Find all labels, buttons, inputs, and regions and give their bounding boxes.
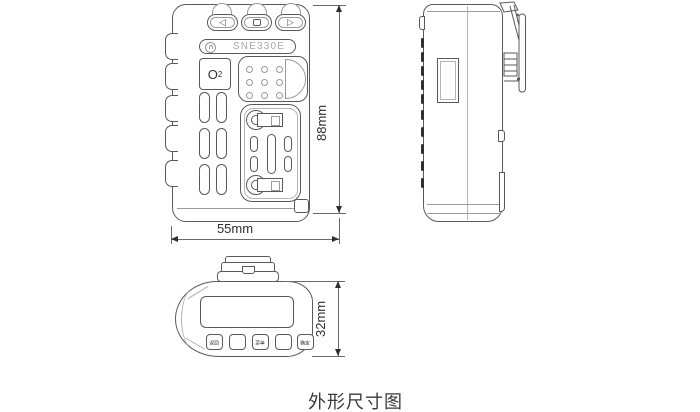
grip-rib: [165, 95, 178, 122]
side-rib: [421, 178, 424, 188]
model-label-bar: SNE330E: [199, 39, 296, 54]
side-center-seam: [467, 6, 468, 220]
extension-line: [313, 213, 346, 214]
dimension-line: [338, 281, 339, 356]
speaker-hole: [261, 92, 268, 99]
speaker-hole: [276, 79, 283, 86]
device-button-left: ◁: [207, 14, 238, 31]
sensor-slot: [284, 156, 292, 172]
side-rib: [421, 110, 424, 120]
o2-label: O2: [200, 59, 230, 89]
key-confirm: 确定: [297, 334, 314, 350]
side-right-notch: [498, 130, 505, 142]
extension-line: [339, 218, 340, 244]
speaker-hole: [246, 66, 253, 73]
side-body-outline: [423, 4, 503, 222]
display-window: [200, 296, 294, 328]
belt-clip: [494, 0, 534, 100]
grip-rib: [165, 63, 178, 90]
side-rib: [421, 80, 424, 90]
o2-sensor-window: O2: [199, 58, 231, 90]
grip-rib: [165, 33, 178, 60]
side-top-seam: [427, 11, 500, 12]
buzzer-pocket: [285, 59, 306, 99]
side-window-inner-line: [440, 61, 456, 100]
arrowhead: [336, 5, 342, 12]
sensor-slot: [250, 156, 258, 172]
dimension-line: [339, 5, 340, 213]
arrowhead: [332, 236, 339, 242]
side-rib: [421, 144, 424, 154]
vent-slot: [199, 128, 210, 159]
key-back: 返回: [206, 334, 223, 350]
drawing-caption: 外形尺寸图: [308, 388, 403, 412]
speaker-hole: [261, 79, 268, 86]
speaker-hole: [246, 92, 253, 99]
arrowhead: [336, 206, 342, 213]
corner-notch: [294, 199, 309, 213]
vent-slot: [216, 92, 227, 123]
right-arrow-icon: ▷: [287, 18, 294, 27]
side-button-profile: [419, 16, 425, 30]
side-rib: [421, 161, 424, 171]
depth-dim-label: 32mm: [313, 295, 328, 343]
side-rib: [421, 66, 424, 76]
vent-slot: [216, 128, 227, 159]
square-icon: [253, 19, 261, 26]
dimension-line: [172, 239, 339, 240]
key-menu: 菜单: [252, 334, 269, 350]
arrowhead: [171, 236, 178, 242]
side-right-step: [499, 172, 505, 212]
side-bottom-seam: [427, 213, 501, 214]
sensor-slot: [250, 136, 258, 152]
model-label: SNE330E: [224, 41, 294, 52]
vent-slot: [216, 164, 227, 195]
key-blank: [229, 334, 246, 350]
side-rib: [421, 52, 424, 62]
grip-rib: [165, 160, 178, 187]
arrowhead: [335, 281, 341, 288]
speaker-hole: [261, 66, 268, 73]
sensor-slot-center: [267, 134, 276, 174]
left-arrow-icon: ◁: [219, 18, 226, 27]
extension-line: [312, 356, 345, 357]
key-blank: [275, 334, 292, 350]
device-button-right: ▷: [275, 14, 306, 31]
speaker-hole: [276, 92, 283, 99]
sensor-panel: [240, 104, 301, 202]
side-rib: [421, 38, 424, 48]
height-dim-label: 88mm: [314, 95, 329, 151]
width-dim-label: 55mm: [205, 221, 265, 236]
vent-slot: [199, 92, 210, 123]
speaker-hole: [276, 66, 283, 73]
side-window: [437, 58, 459, 103]
clip-center-notch: [242, 266, 255, 274]
vent-slot: [199, 164, 210, 195]
front-bottom-seam: [177, 208, 303, 209]
side-rib: [421, 127, 424, 137]
sensor-slot: [284, 136, 292, 152]
grip-rib: [165, 125, 178, 152]
speaker-hole: [246, 79, 253, 86]
device-button-middle: [241, 14, 272, 31]
side-bottom-seam: [427, 204, 501, 205]
clamp-latch-bottom: [257, 178, 283, 192]
dimension-drawing: ◁ ▷ SNE330E O2: [0, 0, 700, 412]
side-rib: [421, 94, 424, 104]
clamp-latch-top: [257, 113, 283, 127]
alarm-icon: [205, 42, 216, 53]
arrowhead: [335, 349, 341, 356]
